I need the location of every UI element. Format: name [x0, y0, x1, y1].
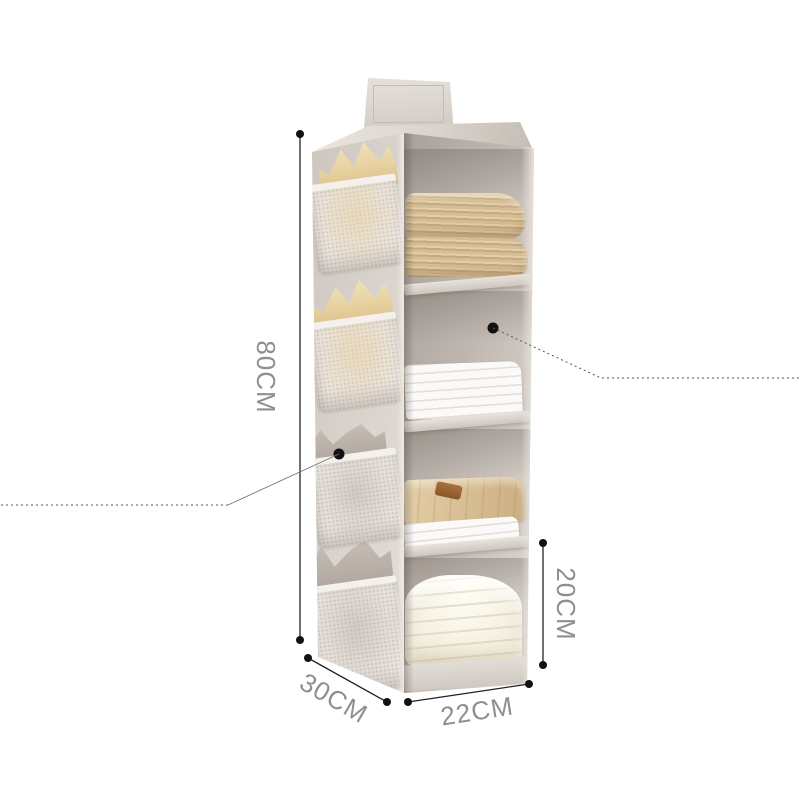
- strap-stitching: [373, 85, 444, 123]
- mesh-pocket-4: [303, 575, 412, 699]
- leather-strap-accent: [434, 481, 462, 500]
- shelf-column: [404, 133, 534, 693]
- height-dimension-label: 80CM: [251, 327, 281, 427]
- callout-line-right: [488, 323, 800, 379]
- mesh-pocket-2: [306, 311, 408, 413]
- knit-sweater-item: [405, 193, 526, 239]
- knit-sweater-fold: [405, 237, 528, 277]
- mesh-pocket-column: [308, 133, 404, 693]
- shelf-height-dimension-line: [539, 539, 547, 669]
- blanket-item: [405, 575, 522, 666]
- mesh-pocket-3: [306, 447, 408, 549]
- mesh-pocket-1: [306, 173, 408, 275]
- width-dimension-label: 22CM: [425, 688, 528, 733]
- height-dimension-line: [296, 130, 304, 644]
- shelf-height-dimension-label: 20CM: [551, 554, 581, 654]
- product-scene: 80CM 30CM 22CM 20CM: [0, 0, 800, 800]
- callout-line-left: [0, 449, 345, 506]
- compartment-2-shadow: [404, 291, 534, 343]
- towel-stack-item: [404, 361, 523, 420]
- compartment-3-shadow: [404, 429, 534, 481]
